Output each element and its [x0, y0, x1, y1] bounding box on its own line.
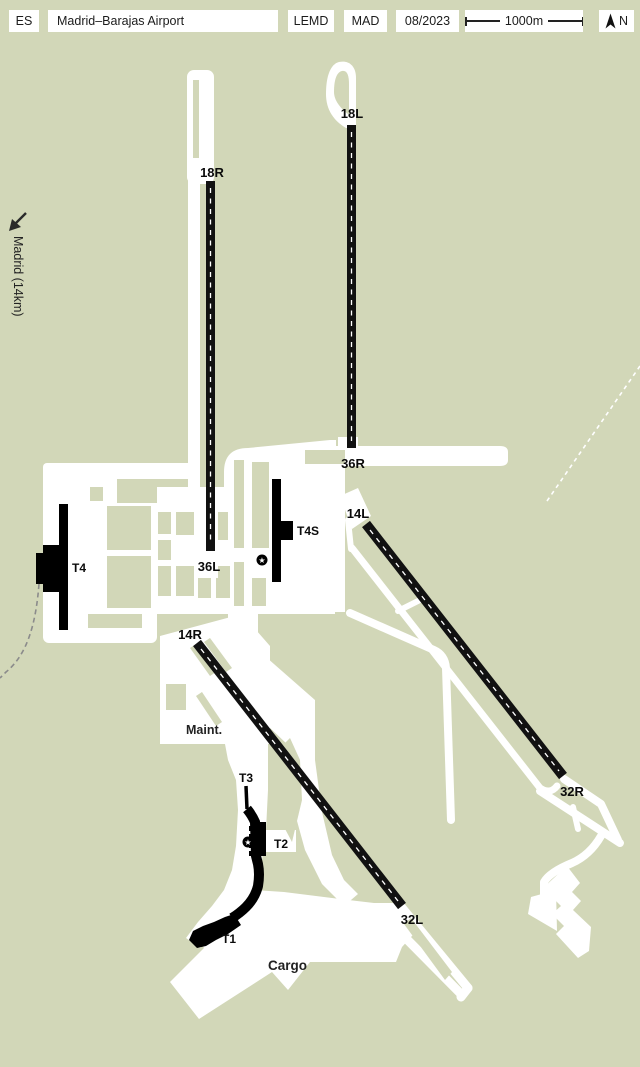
north-indicator: N	[599, 10, 634, 32]
label-cargo-area: Cargo	[268, 958, 307, 973]
chart-date-badge: 08/2023	[396, 10, 459, 32]
label-runway-36L: 36L	[198, 559, 220, 574]
star-marker-t4s: ★	[257, 555, 268, 566]
label-runway-14R: 14R	[178, 627, 202, 642]
label-runway-32L: 32L	[401, 912, 423, 927]
iata-code-badge: MAD	[344, 10, 387, 32]
label-terminal-t3: T3	[239, 771, 253, 785]
svg-text:★: ★	[258, 556, 265, 565]
north-label: N	[619, 15, 628, 28]
scale-label: 1000m	[505, 15, 543, 28]
label-runway-18L: 18L	[341, 106, 363, 121]
airport-title: Madrid–Barajas Airport	[48, 10, 278, 32]
svg-text:★: ★	[244, 838, 251, 847]
scale-left-bar	[467, 20, 500, 22]
country-code-badge: ES	[9, 10, 39, 32]
label-runway-36R: 36R	[341, 456, 365, 471]
icao-code-badge: LEMD	[288, 10, 334, 32]
label-terminal-t4s: T4S	[297, 524, 319, 538]
label-maintenance-area: Maint.	[186, 723, 222, 737]
airport-map: ★ ★ Madrid (14km) 18R 18L 36R 36L 14L 14…	[0, 0, 640, 1067]
north-arrow-icon	[605, 13, 616, 29]
star-marker-t2: ★	[243, 837, 254, 848]
label-terminal-t2: T2	[274, 837, 288, 851]
label-terminal-t1: T1	[222, 932, 236, 946]
scale-right-tick-icon	[582, 17, 584, 26]
airport-diagram-page: ★ ★ Madrid (14km) 18R 18L 36R 36L 14L 14…	[0, 0, 640, 1067]
scale-bar: 1000m	[465, 10, 583, 32]
madrid-distance-label: Madrid (14km)	[11, 236, 25, 317]
label-runway-32R: 32R	[560, 784, 584, 799]
runway-18L-36R	[347, 125, 356, 448]
label-runway-18R: 18R	[200, 165, 224, 180]
label-runway-14L: 14L	[347, 506, 369, 521]
label-terminal-t4: T4	[72, 561, 86, 575]
scale-right-bar	[548, 20, 581, 22]
